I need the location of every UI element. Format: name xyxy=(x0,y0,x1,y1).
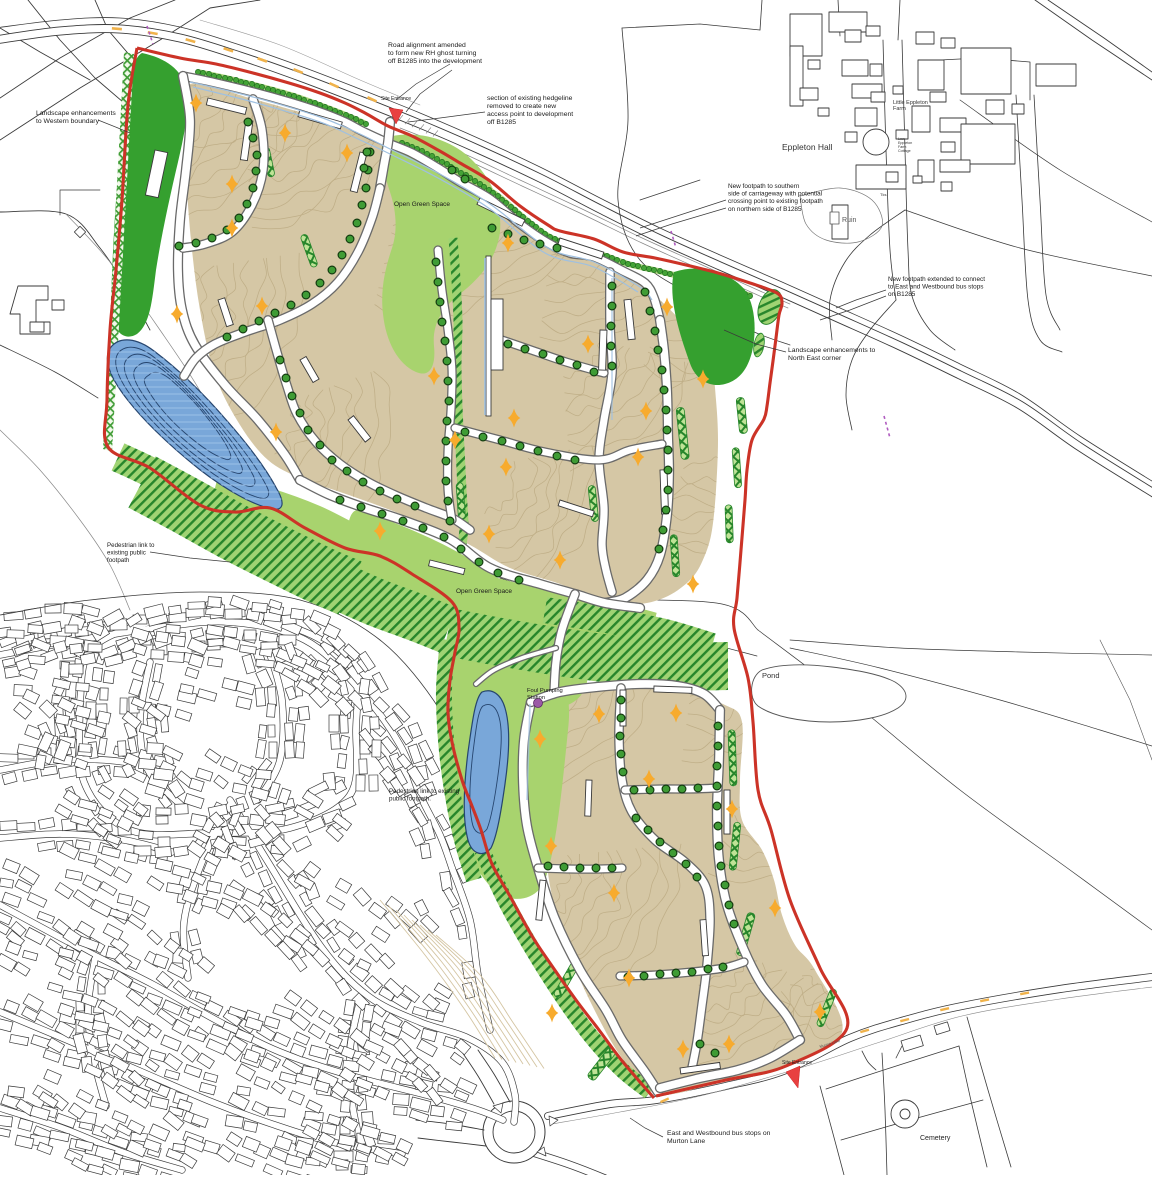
svg-text:Tks: Tks xyxy=(880,192,886,197)
svg-text:Site Entrance: Site Entrance xyxy=(381,96,411,102)
svg-text:Open Green Space: Open Green Space xyxy=(456,588,512,595)
svg-text:Cemetery: Cemetery xyxy=(920,1135,951,1142)
svg-text:Ruin: Ruin xyxy=(842,217,857,224)
svg-text:Open Green Space: Open Green Space xyxy=(394,201,450,208)
svg-text:Eppleton Hall: Eppleton Hall xyxy=(782,142,833,152)
svg-text:Site Entrance: Site Entrance xyxy=(782,1060,812,1066)
svg-text:Pond: Pond xyxy=(762,671,780,680)
